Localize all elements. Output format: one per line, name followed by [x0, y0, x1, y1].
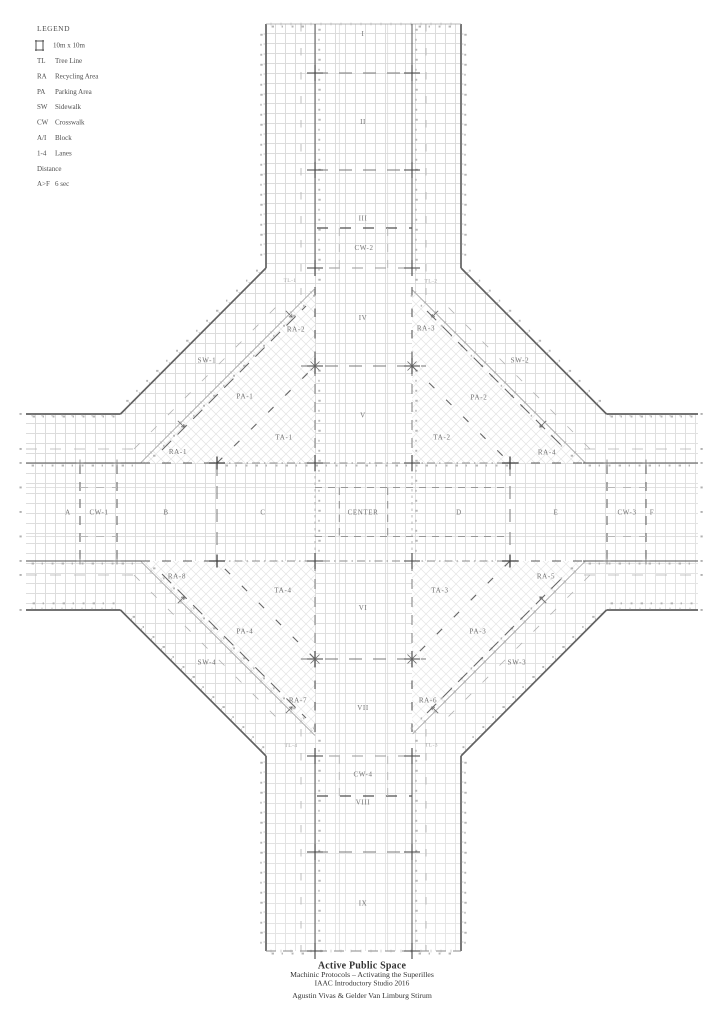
svg-text:IAAC Introductory Studio 2016: IAAC Introductory Studio 2016	[315, 979, 410, 988]
svg-text:RA-4: RA-4	[538, 449, 556, 457]
svg-text:RA: RA	[37, 72, 47, 80]
svg-text:CW: CW	[37, 119, 49, 127]
svg-text:PA-3: PA-3	[470, 628, 487, 636]
svg-text:10m x 10m: 10m x 10m	[53, 42, 85, 50]
svg-text:PA-2: PA-2	[471, 394, 488, 402]
svg-text:TA-1: TA-1	[275, 434, 292, 442]
svg-text:I: I	[362, 30, 365, 38]
svg-text:SW-1: SW-1	[198, 357, 217, 365]
svg-text:A>F: A>F	[37, 180, 50, 188]
svg-text:SW-2: SW-2	[511, 357, 530, 365]
svg-text:TA-4: TA-4	[274, 587, 291, 595]
svg-text:RA-8: RA-8	[168, 573, 186, 581]
svg-text:RA-3: RA-3	[417, 325, 435, 333]
svg-text:TA-3: TA-3	[431, 587, 448, 595]
svg-text:Crosswalk: Crosswalk	[55, 119, 85, 127]
svg-text:TL-3: TL-3	[425, 743, 438, 749]
svg-text:SW: SW	[37, 103, 48, 111]
svg-text:V: V	[360, 412, 366, 420]
svg-text:RA-1: RA-1	[169, 448, 187, 456]
svg-text:CENTER: CENTER	[348, 509, 379, 517]
svg-text:A/I: A/I	[37, 134, 47, 142]
svg-text:Lanes: Lanes	[55, 149, 72, 157]
svg-text:LEGEND: LEGEND	[37, 24, 70, 33]
svg-text:Distance: Distance	[37, 165, 62, 173]
svg-text:B: B	[163, 509, 168, 517]
svg-text:CW-3: CW-3	[617, 509, 636, 517]
svg-text:PA-4: PA-4	[237, 628, 254, 636]
svg-text:II: II	[360, 118, 366, 126]
svg-text:RA-2: RA-2	[287, 326, 305, 334]
svg-text:C: C	[260, 509, 265, 517]
svg-text:IX: IX	[359, 900, 368, 908]
svg-text:Recycling Area: Recycling Area	[55, 72, 99, 80]
svg-text:RA-7: RA-7	[289, 697, 307, 705]
svg-text:TA-2: TA-2	[433, 434, 450, 442]
svg-text:6 sec: 6 sec	[55, 180, 69, 188]
svg-text:D: D	[456, 509, 462, 517]
svg-text:PA-1: PA-1	[237, 393, 254, 401]
svg-text:1-4: 1-4	[37, 149, 47, 157]
svg-text:VIII: VIII	[356, 799, 371, 807]
svg-text:Agustin Vivas & Gelder Van Lim: Agustin Vivas & Gelder Van Limburg Stiru…	[292, 991, 432, 1000]
svg-text:TL-4: TL-4	[285, 743, 298, 749]
svg-text:E: E	[554, 509, 559, 517]
svg-text:CW-2: CW-2	[354, 244, 373, 252]
svg-text:TL: TL	[37, 57, 46, 65]
svg-text:IV: IV	[359, 314, 368, 322]
svg-text:Parking Area: Parking Area	[55, 88, 93, 96]
svg-text:F: F	[650, 509, 655, 517]
svg-text:CW-4: CW-4	[353, 771, 372, 779]
svg-text:CW-1: CW-1	[89, 509, 108, 517]
svg-text:RA-6: RA-6	[419, 697, 437, 705]
svg-text:PA: PA	[37, 88, 45, 96]
svg-text:Tree Line: Tree Line	[55, 57, 82, 65]
svg-text:RA-5: RA-5	[537, 573, 555, 581]
svg-text:Sidewalk: Sidewalk	[55, 103, 82, 111]
svg-text:III: III	[359, 215, 368, 223]
svg-text:TL-2: TL-2	[425, 279, 438, 285]
svg-text:Block: Block	[55, 134, 72, 142]
svg-text:VII: VII	[357, 704, 369, 712]
svg-text:TL-1: TL-1	[284, 278, 297, 284]
svg-text:VI: VI	[359, 604, 368, 612]
svg-text:SW-3: SW-3	[508, 659, 527, 667]
svg-text:SW-4: SW-4	[198, 659, 217, 667]
svg-text:A: A	[65, 509, 71, 517]
